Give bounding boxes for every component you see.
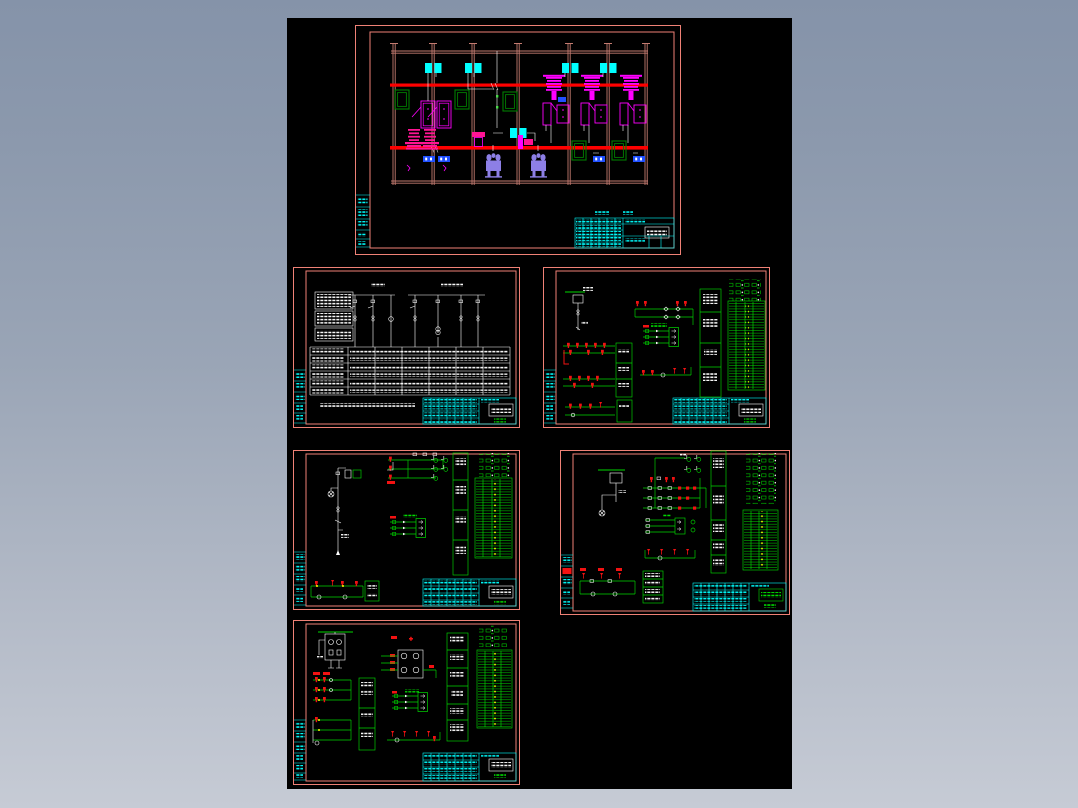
sheet-secondary-4: Secondary wiring schematic sheet 4 with … (293, 620, 520, 785)
sheet-secondary-3: Secondary wiring schematic sheet 3 with … (560, 450, 790, 615)
relay-ladder-bottom-left (580, 568, 635, 596)
sheet-secondary-1: Secondary wiring schematic sheet 1 with … (543, 267, 770, 428)
terminal-strip (475, 453, 512, 558)
legend-header-boxes (315, 292, 353, 341)
relay-ladder-block (643, 453, 706, 510)
legend-column-box (700, 289, 721, 397)
legend-column-box (447, 633, 468, 741)
signature-stamps (294, 370, 306, 423)
relay-ladder-bottom (311, 580, 379, 601)
signature-stamps (561, 555, 573, 608)
sheet-layout-drawing: Substation layout / section drawing with… (355, 25, 681, 255)
mini-single-line (598, 470, 626, 516)
ct-metering-block (390, 514, 426, 538)
sheet-single-line-table: Primary single-line diagram with equipme… (293, 267, 520, 428)
relay-ladder-left-1 (313, 672, 351, 702)
page-background: { "viewer": { "name": "CAD drawing previ… (0, 0, 1078, 808)
note-text (320, 403, 415, 408)
title-block (423, 579, 516, 606)
terminal-strip (743, 453, 778, 570)
equipment-table (310, 347, 510, 395)
title-block (423, 753, 516, 781)
title-block (423, 398, 516, 424)
title-block (575, 211, 674, 248)
signal-row (640, 367, 691, 377)
drawing-canvas[interactable]: Substation layout / section drawing with… (287, 18, 792, 789)
relay-ladder-bottom (565, 400, 632, 422)
signature-stamps (356, 195, 370, 247)
signal-row (645, 549, 695, 560)
signal-row (387, 731, 440, 742)
relay-ladder-left-2 (313, 717, 351, 745)
fuse-circuit-top (635, 301, 693, 325)
bus-section-labels (371, 283, 463, 287)
mini-single-line (328, 468, 361, 555)
legend-column-box (711, 451, 726, 573)
transformer-icons (485, 153, 547, 177)
mini-single-line (565, 287, 593, 330)
sheet-secondary-2: Secondary wiring schematic sheet 2 with … (293, 450, 520, 610)
single-line-diagram (348, 295, 485, 347)
ct-metering-block (643, 323, 679, 347)
signature-stamps (544, 370, 556, 423)
mini-single-line (317, 632, 353, 668)
small-legend-box (359, 678, 375, 750)
small-legend-box (643, 571, 663, 603)
legend-column-box (453, 453, 468, 575)
signature-stamps (294, 720, 306, 780)
terminal-strip (477, 625, 512, 728)
transformer-test-block (381, 636, 436, 678)
lamp-circuits (387, 453, 448, 484)
ct-sub-block (645, 514, 695, 534)
signature-stamps (294, 552, 306, 605)
ct-metering-block (392, 689, 428, 712)
terminal-strip (728, 279, 765, 390)
relay-ladder-left (563, 343, 632, 397)
wall-bushing-icon (425, 63, 617, 138)
title-block (673, 398, 766, 424)
title-block (693, 583, 786, 611)
